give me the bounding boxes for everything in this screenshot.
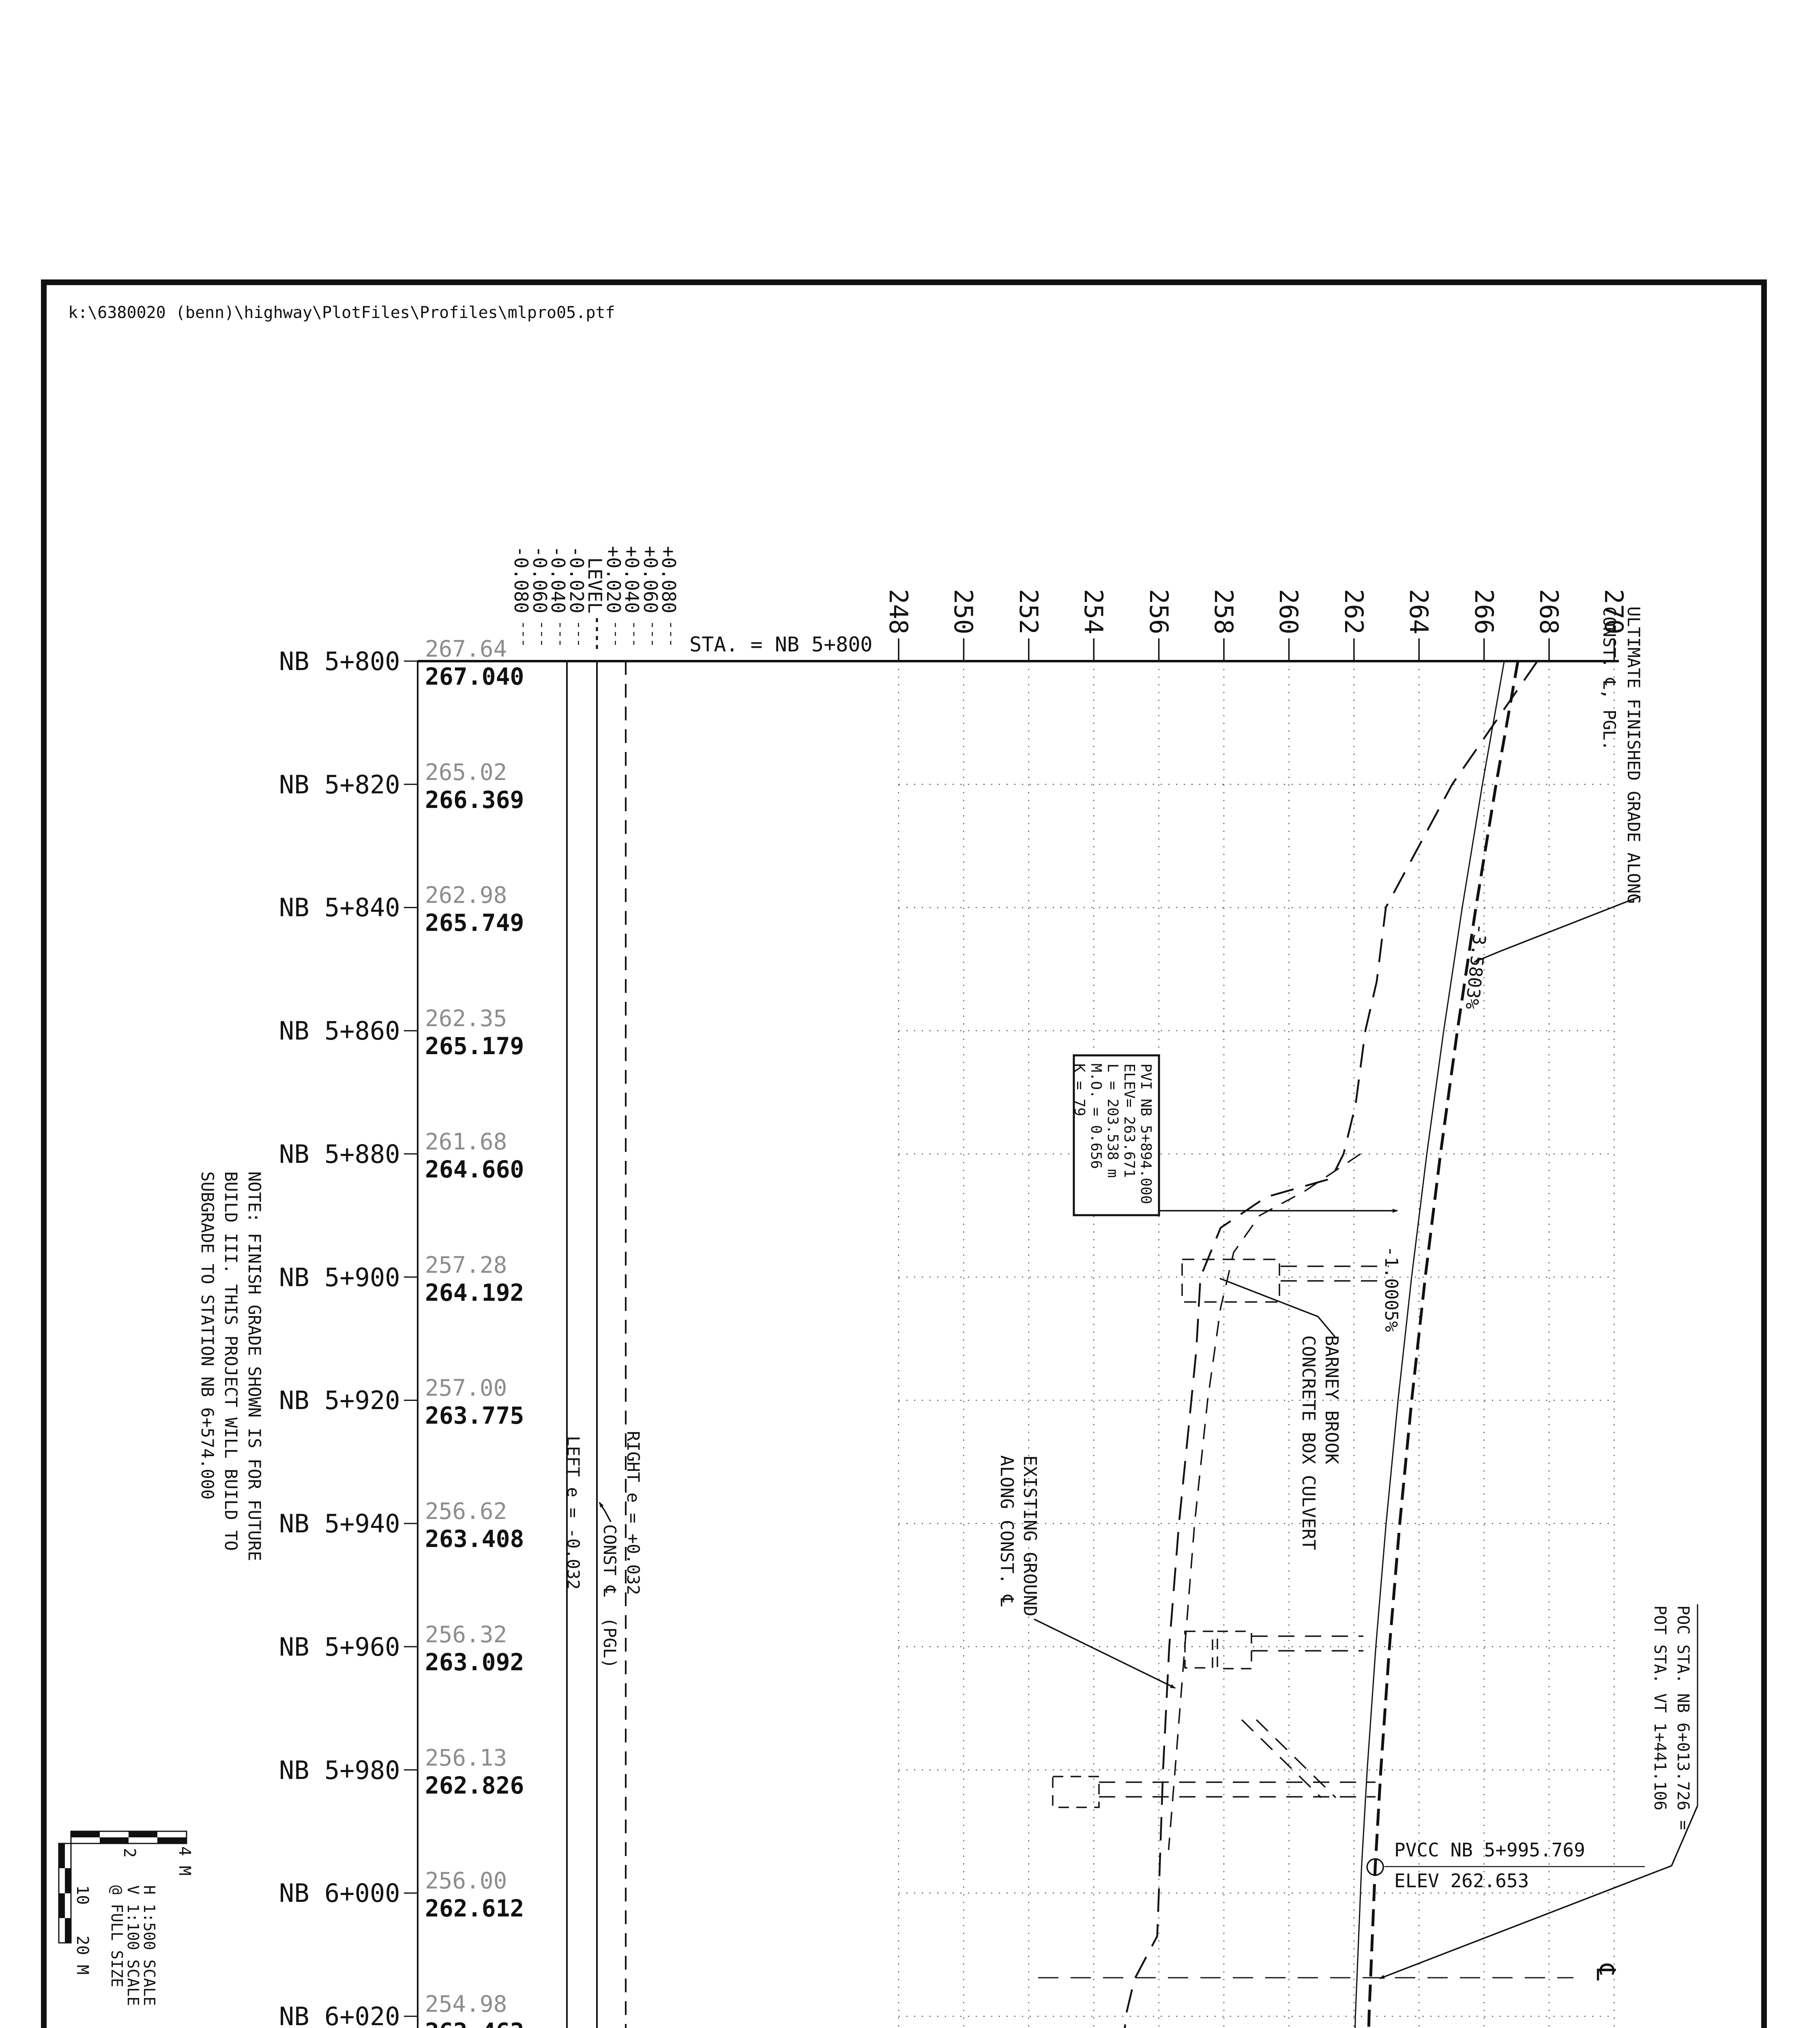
station-label: NB 5+840 (279, 893, 400, 922)
station-label: NB 6+020 (279, 2002, 400, 2028)
existing-elevation-value: 262.98 (425, 882, 507, 909)
finished-elevation-value: 263.775 (425, 1402, 524, 1429)
finished-elevation-value: 264.660 (425, 1156, 524, 1183)
finished-elevation-value: 266.369 (425, 786, 524, 814)
profile-sheet: k:\6380020 (benn)\highway\PlotFiles\Prof… (0, 0, 1820, 2028)
station-label: NB 5+920 (279, 1386, 400, 1415)
existing-elevation-value: 257.28 (425, 1252, 507, 1278)
existing-elevation-value: 256.00 (425, 1868, 507, 1894)
elevation-label-top: 254 (1079, 589, 1108, 634)
finished-elevation-value: 262.612 (425, 1895, 524, 1922)
existing-elevation-value: 261.68 (425, 1129, 507, 1155)
finished-elevation-value: 267.040 (425, 663, 524, 690)
elevation-label-top: 250 (949, 589, 978, 634)
finished-elevation-value: 263.092 (425, 1648, 524, 1676)
station-label: NB 6+000 (279, 1878, 400, 1908)
finished-elevation-value: 264.192 (425, 1279, 524, 1306)
elevation-label-top: 256 (1144, 589, 1174, 634)
elevation-label-top: 248 (884, 589, 913, 634)
existing-elevation-value: 256.62 (425, 1498, 507, 1525)
station-label: NB 5+900 (279, 1263, 400, 1292)
elevation-label-top: 260 (1274, 589, 1303, 634)
elevation-label-top: 270 (1599, 589, 1629, 634)
existing-elevation-value: 265.02 (425, 759, 507, 786)
metric-logo-etric-layer: etric (0, 0, 1820, 2028)
elevation-label-top: 266 (1469, 589, 1499, 634)
existing-elevation-value: 256.32 (425, 1622, 507, 1648)
station-label: NB 5+940 (279, 1509, 400, 1538)
existing-elevation-value: 262.35 (425, 1005, 507, 1032)
elevation-label-top: 262 (1339, 589, 1369, 634)
elevation-label-top: 258 (1209, 589, 1238, 634)
existing-elevation-value: 257.00 (425, 1375, 507, 1401)
elevation-label-top: 264 (1404, 589, 1434, 634)
elevation-label-top: 252 (1014, 589, 1043, 634)
finished-elevation-value: 265.749 (425, 909, 524, 937)
station-label: NB 5+960 (279, 1632, 400, 1662)
elevation-label-top: 268 (1534, 589, 1564, 634)
finished-elevation-value: 262.463 (425, 2018, 524, 2028)
existing-elevation-value: 267.64 (425, 636, 507, 662)
station-label: NB 5+880 (279, 1139, 400, 1169)
station-label: NB 5+980 (279, 1755, 400, 1785)
superelevation-scale-label: +0.080 (658, 546, 680, 613)
existing-elevation-value: 256.13 (425, 1745, 507, 1771)
finished-elevation-value: 265.179 (425, 1032, 524, 1060)
station-label: NB 5+860 (279, 1016, 400, 1046)
finished-elevation-value: 262.826 (425, 1772, 524, 1799)
finished-elevation-value: 263.408 (425, 1525, 524, 1553)
existing-elevation-value: 254.98 (425, 1991, 507, 2017)
station-label: NB 5+820 (279, 770, 400, 799)
station-label: NB 5+800 (279, 647, 400, 676)
